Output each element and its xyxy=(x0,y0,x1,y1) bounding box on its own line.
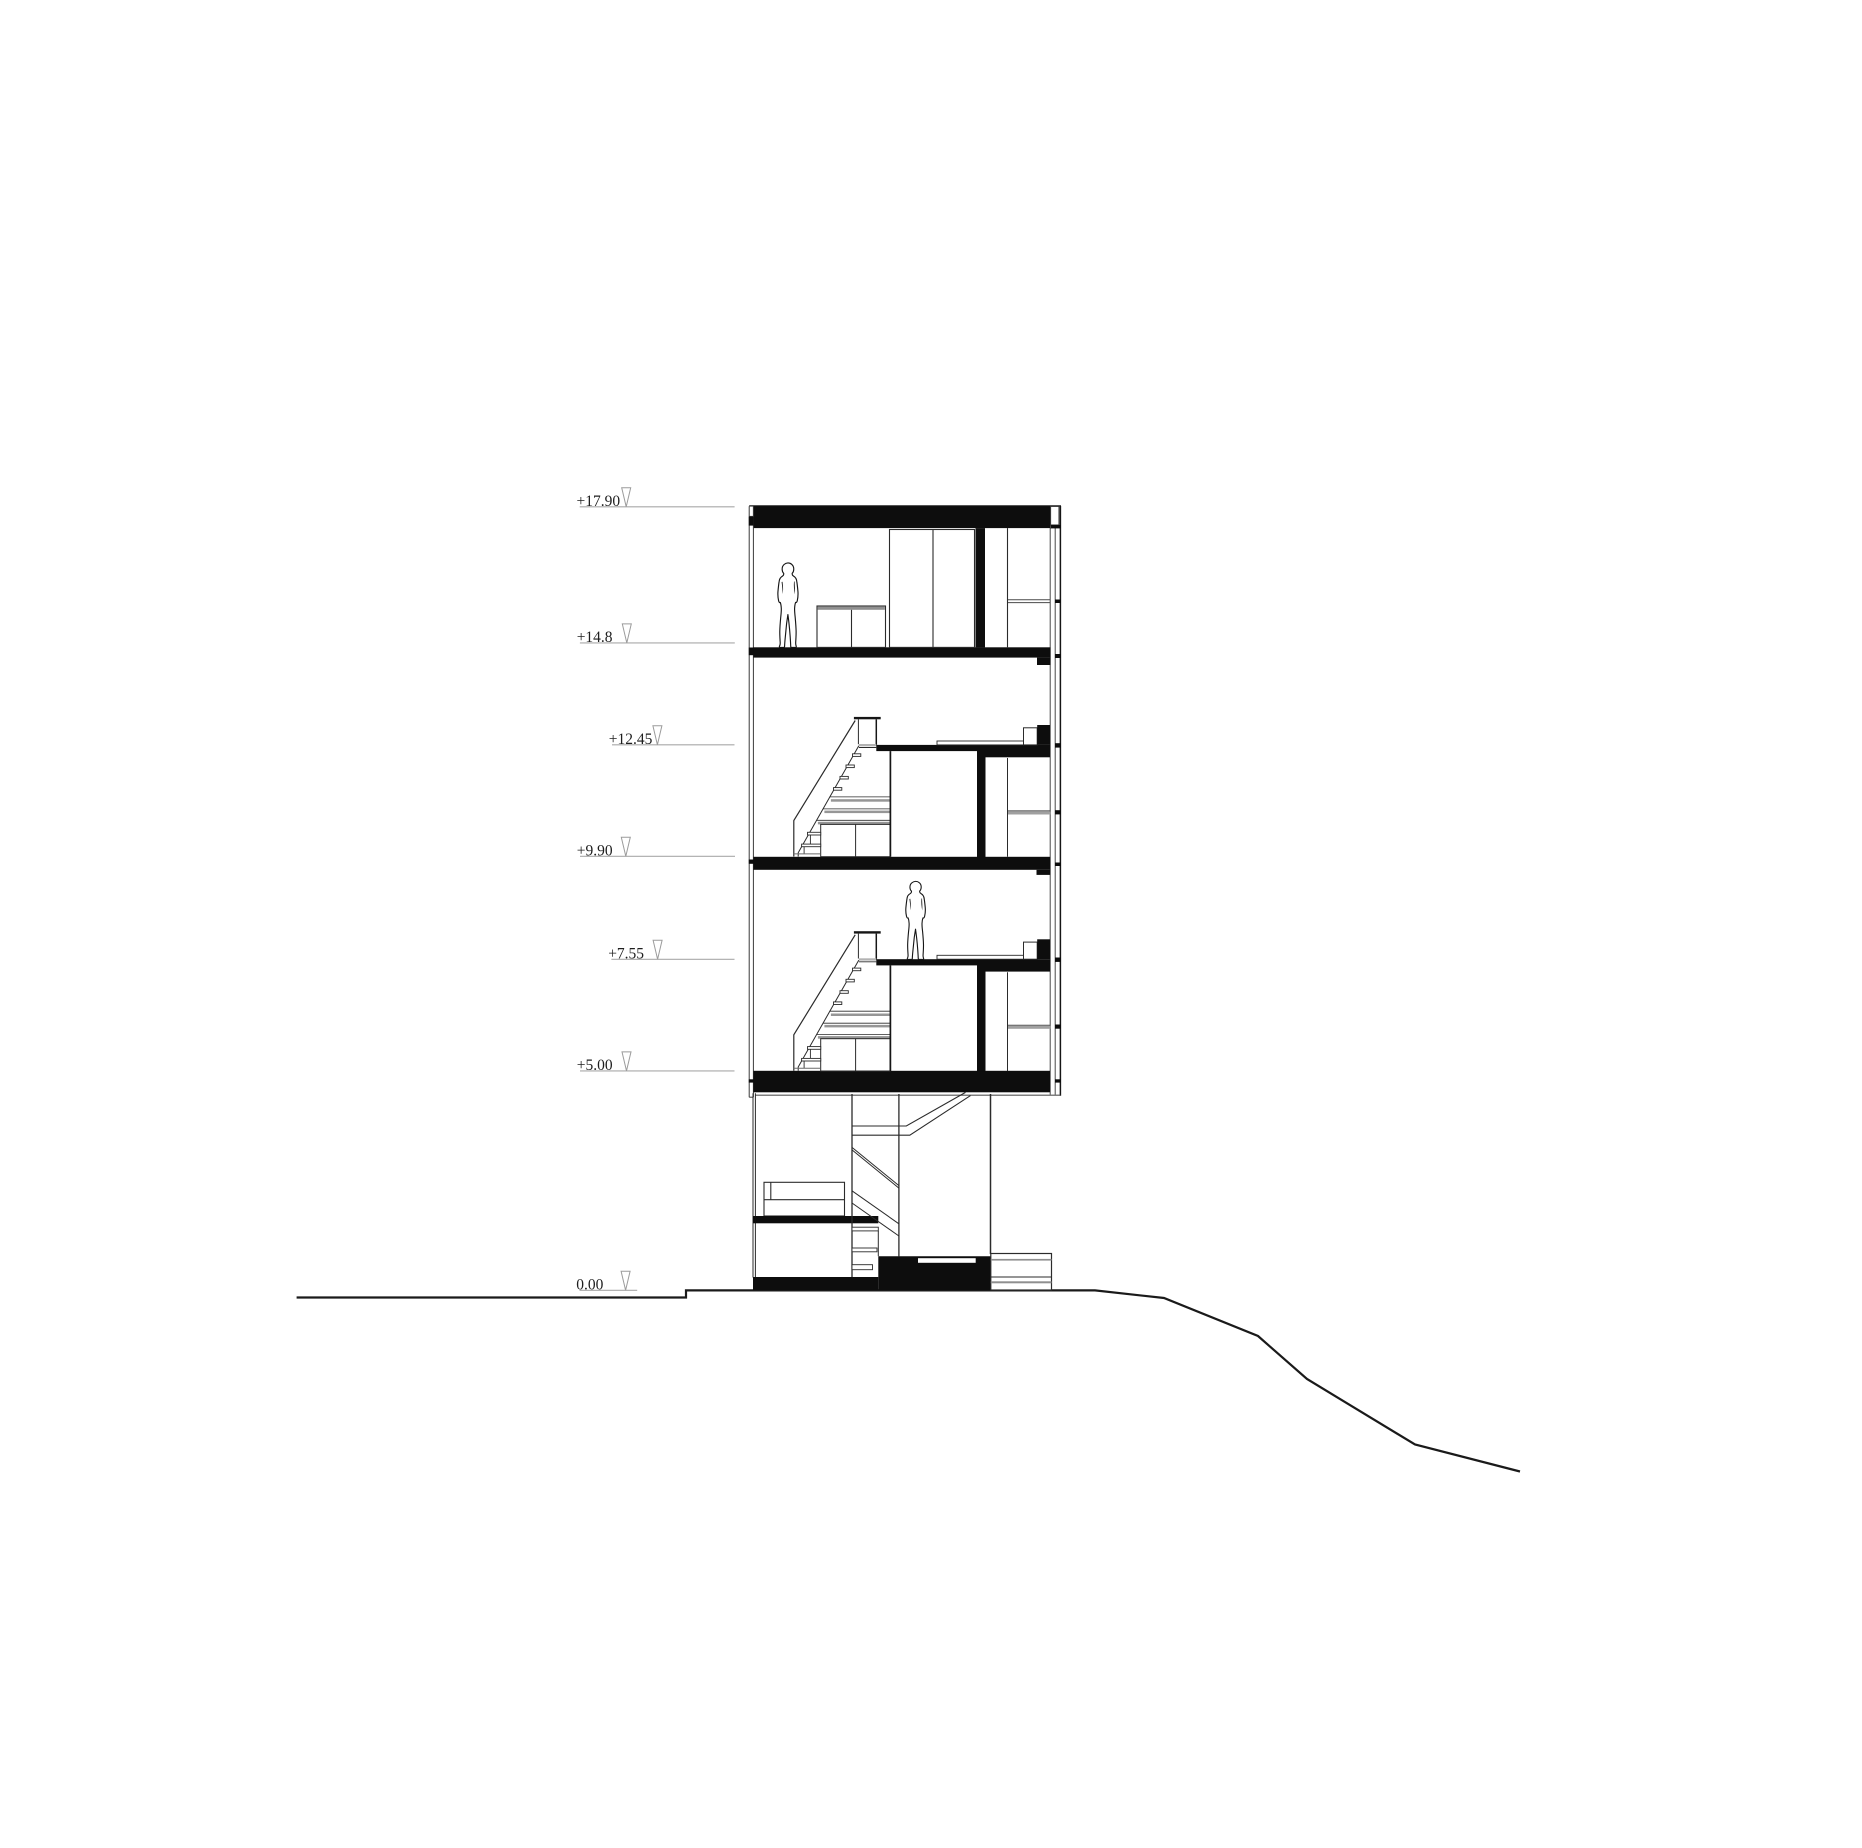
svg-text:+14.8: +14.8 xyxy=(577,629,613,646)
svg-text:+7.55: +7.55 xyxy=(608,946,644,963)
svg-text:+9.90: +9.90 xyxy=(577,843,613,860)
svg-text:+17.90: +17.90 xyxy=(577,493,621,510)
svg-text:+5.00: +5.00 xyxy=(577,1057,613,1074)
svg-text:+12.45: +12.45 xyxy=(609,731,653,748)
svg-text:0.00: 0.00 xyxy=(576,1277,603,1294)
